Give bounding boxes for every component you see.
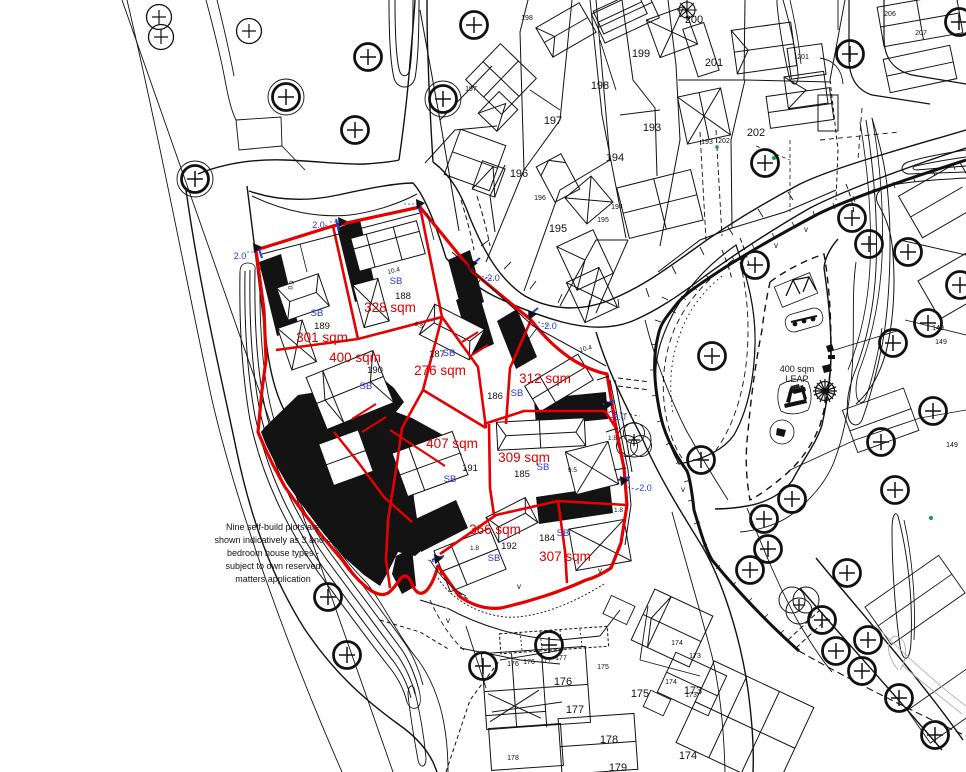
svg-text:-2.0: -2.0 xyxy=(610,412,626,422)
svg-text:SB: SB xyxy=(311,308,324,319)
svg-text:191: 191 xyxy=(462,463,478,474)
svg-text:-2.0: -2.0 xyxy=(484,273,500,283)
svg-text:202: 202 xyxy=(718,138,730,145)
svg-text:matters application: matters application xyxy=(235,574,311,584)
svg-text:9.5: 9.5 xyxy=(568,467,577,474)
svg-text:198: 198 xyxy=(521,15,533,22)
svg-text:366 sqm: 366 sqm xyxy=(469,522,521,537)
svg-text:201: 201 xyxy=(705,57,723,69)
svg-text:186: 186 xyxy=(487,391,503,402)
svg-text:189: 189 xyxy=(314,321,330,332)
svg-text:v: v xyxy=(598,566,602,575)
svg-text:192: 192 xyxy=(501,541,517,552)
svg-text:206: 206 xyxy=(884,11,896,18)
svg-text:177: 177 xyxy=(555,655,567,662)
svg-text:179: 179 xyxy=(609,762,627,772)
svg-text:193: 193 xyxy=(701,139,713,146)
svg-text:198: 198 xyxy=(591,80,609,92)
svg-text:SB: SB xyxy=(360,381,373,392)
svg-text:-2.0: -2.0 xyxy=(541,321,557,331)
svg-text:194: 194 xyxy=(611,204,623,211)
svg-text:195: 195 xyxy=(597,217,609,224)
svg-text:201: 201 xyxy=(797,54,809,61)
svg-text:197: 197 xyxy=(465,86,477,93)
svg-text:307 sqm: 307 sqm xyxy=(539,549,591,564)
svg-text:2.0-: 2.0- xyxy=(312,220,328,230)
svg-text:174: 174 xyxy=(665,679,677,686)
svg-text:v: v xyxy=(804,225,808,234)
svg-text:SB: SB xyxy=(443,348,456,359)
svg-text:shown indicatively as 3 and 4: shown indicatively as 3 and 4 xyxy=(214,535,331,545)
svg-text:407 sqm: 407 sqm xyxy=(426,436,478,451)
svg-text:SB: SB xyxy=(444,474,457,485)
svg-text:202: 202 xyxy=(747,127,765,139)
svg-text:276 sqm: 276 sqm xyxy=(414,363,466,378)
svg-text:SB: SB xyxy=(537,462,550,473)
svg-text:193: 193 xyxy=(643,122,661,134)
svg-text:149: 149 xyxy=(935,339,947,346)
svg-text:176: 176 xyxy=(554,676,572,688)
svg-text:1.8: 1.8 xyxy=(614,507,623,514)
svg-text:176: 176 xyxy=(507,661,519,668)
svg-text:Nine self-build plots are: Nine self-build plots are xyxy=(226,522,320,532)
svg-text:1.8: 1.8 xyxy=(470,545,479,552)
svg-text:184: 184 xyxy=(539,533,555,544)
svg-text:195: 195 xyxy=(549,223,567,235)
svg-text:SB: SB xyxy=(488,553,501,564)
svg-text:188: 188 xyxy=(395,291,411,302)
svg-text:199: 199 xyxy=(632,48,650,60)
svg-text:196: 196 xyxy=(510,168,528,180)
svg-text:bedroom house types -: bedroom house types - xyxy=(227,548,319,558)
svg-text:v: v xyxy=(446,616,450,625)
svg-text:196: 196 xyxy=(534,195,546,202)
svg-text:200: 200 xyxy=(685,14,703,26)
svg-text:176: 176 xyxy=(523,659,535,666)
svg-text:174: 174 xyxy=(679,750,697,762)
svg-text:328 sqm: 328 sqm xyxy=(364,300,416,315)
svg-text:175: 175 xyxy=(597,664,609,671)
svg-text:312 sqm: 312 sqm xyxy=(519,371,571,386)
svg-text:178: 178 xyxy=(507,755,519,762)
svg-text:subject to own reserved: subject to own reserved xyxy=(225,561,320,571)
svg-text:178: 178 xyxy=(600,734,618,746)
svg-text:190: 190 xyxy=(367,365,383,376)
svg-text:149: 149 xyxy=(946,442,958,449)
svg-text:SB: SB xyxy=(557,528,570,539)
svg-text:SB: SB xyxy=(511,388,524,399)
svg-text:v: v xyxy=(517,582,521,591)
svg-text:400 sqm: 400 sqm xyxy=(329,350,381,365)
svg-text:v: v xyxy=(774,241,778,250)
svg-text:197: 197 xyxy=(544,115,562,127)
svg-text:185: 185 xyxy=(514,469,530,480)
svg-text:v: v xyxy=(681,485,685,494)
svg-text:-2.0: -2.0 xyxy=(636,483,652,493)
svg-text:173: 173 xyxy=(689,653,701,660)
svg-text:400 sqm: 400 sqm xyxy=(780,364,815,374)
svg-text:SB: SB xyxy=(390,276,403,287)
svg-text:177: 177 xyxy=(566,704,584,716)
svg-text:175: 175 xyxy=(631,688,649,700)
svg-text:174: 174 xyxy=(671,640,683,647)
svg-text:149: 149 xyxy=(932,325,944,332)
svg-text:177: 177 xyxy=(540,657,552,664)
svg-text:301 sqm: 301 sqm xyxy=(296,330,348,345)
svg-text:1.8: 1.8 xyxy=(608,435,617,442)
svg-text:207: 207 xyxy=(915,30,927,37)
svg-text:2.0: 2.0 xyxy=(234,251,247,261)
svg-text:194: 194 xyxy=(606,152,624,164)
svg-text:LEAP: LEAP xyxy=(785,374,808,384)
svg-text:173: 173 xyxy=(685,692,697,699)
